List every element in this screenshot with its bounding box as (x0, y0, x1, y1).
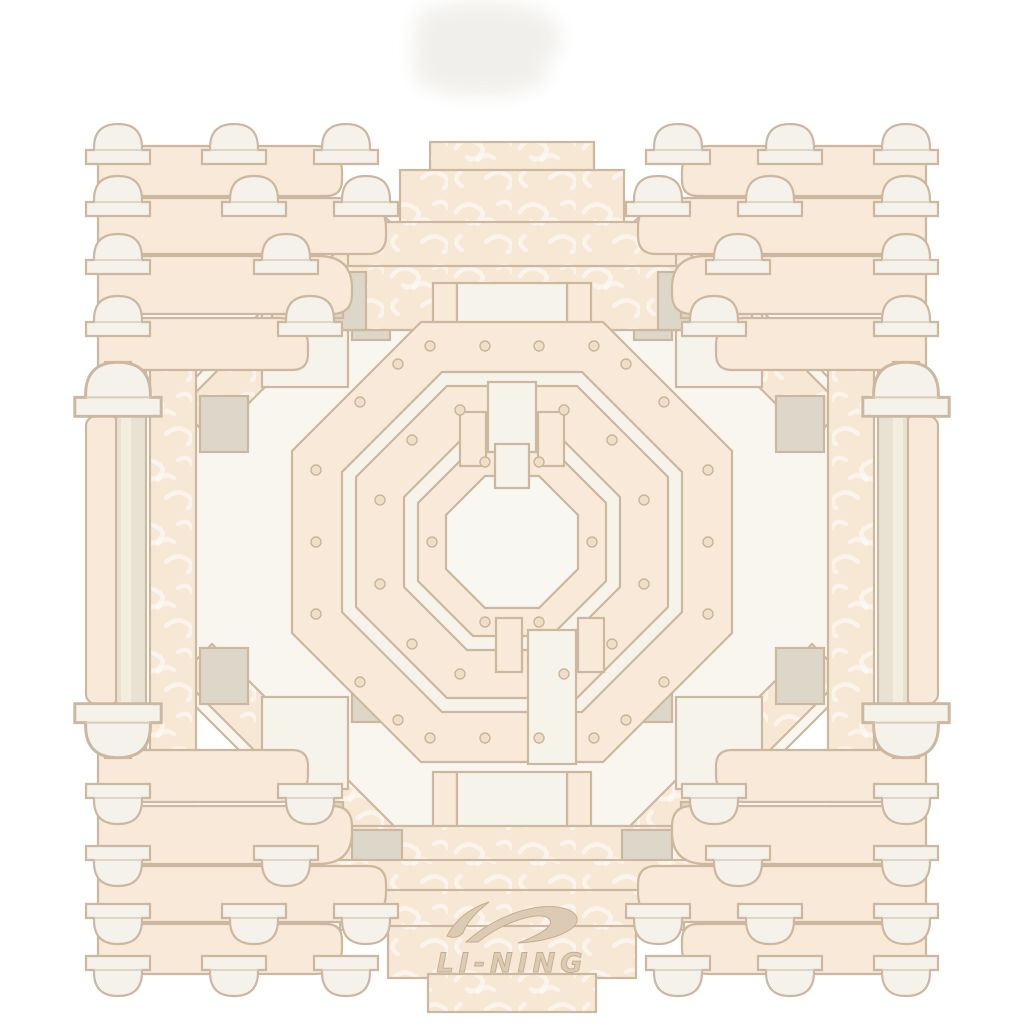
caisson-rings (292, 322, 732, 764)
bottom-channel (528, 630, 576, 764)
product-photo: LI-NING (0, 0, 1024, 1024)
top-channel (488, 382, 536, 452)
print-graphic: LI-NING (0, 0, 1024, 1024)
li-ning-wordmark: LI-NING (437, 948, 588, 979)
